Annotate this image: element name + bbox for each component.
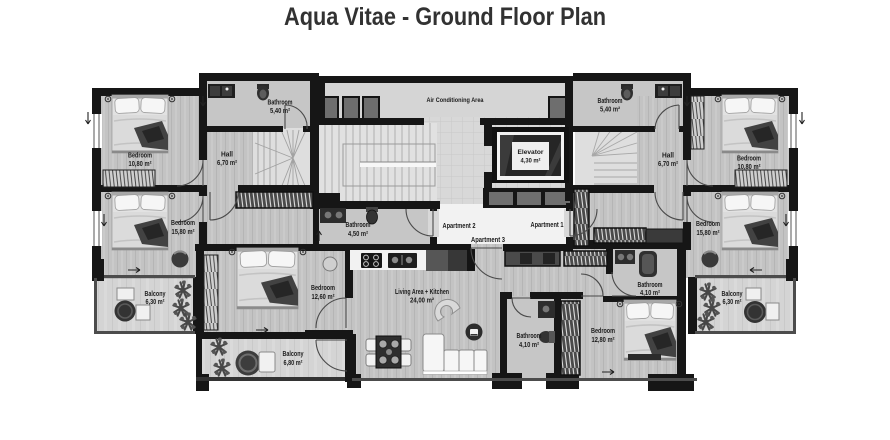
svg-text:Aqua Vitae - Ground Floor Plan: Aqua Vitae - Ground Floor Plan	[284, 3, 606, 31]
svg-text:Bathroom: Bathroom	[268, 100, 293, 107]
svg-text:Balcony: Balcony	[722, 291, 743, 298]
svg-text:Bedroom: Bedroom	[591, 328, 615, 335]
svg-text:6,80 m²: 6,80 m²	[284, 360, 304, 367]
svg-text:Bedroom: Bedroom	[311, 285, 335, 292]
svg-text:Bedroom: Bedroom	[737, 156, 761, 163]
svg-text:5,40 m²: 5,40 m²	[270, 108, 291, 115]
svg-text:Bedroom: Bedroom	[696, 221, 720, 228]
svg-text:24,00 m²: 24,00 m²	[410, 298, 435, 305]
svg-text:Balcony: Balcony	[283, 351, 304, 358]
svg-text:Apartment 1: Apartment 1	[531, 222, 564, 229]
svg-text:6,30 m²: 6,30 m²	[723, 299, 743, 306]
svg-text:Bathroom: Bathroom	[517, 333, 542, 340]
svg-text:4,10 m²: 4,10 m²	[519, 342, 540, 349]
svg-text:5,40 m²: 5,40 m²	[600, 107, 621, 114]
svg-text:Bedroom: Bedroom	[128, 153, 152, 160]
svg-text:12,60 m²: 12,60 m²	[312, 294, 336, 301]
svg-text:Air Conditioning Area: Air Conditioning Area	[427, 97, 484, 104]
svg-text:10,80 m²: 10,80 m²	[129, 161, 153, 168]
svg-text:Balcony: Balcony	[145, 291, 166, 298]
svg-text:Bathroom: Bathroom	[638, 282, 663, 289]
svg-text:12,80 m²: 12,80 m²	[592, 337, 616, 344]
svg-text:4,50 m²: 4,50 m²	[348, 231, 369, 238]
svg-text:Bathroom: Bathroom	[346, 222, 371, 229]
svg-text:Hall: Hall	[221, 152, 233, 159]
svg-text:15,80 m²: 15,80 m²	[172, 229, 196, 236]
svg-text:Living Area + Kitchen: Living Area + Kitchen	[395, 289, 449, 296]
svg-text:Elevator: Elevator	[518, 149, 545, 156]
svg-text:Bedroom: Bedroom	[171, 220, 195, 227]
svg-text:15,80 m²: 15,80 m²	[697, 230, 721, 237]
svg-text:4,30 m²: 4,30 m²	[521, 158, 541, 165]
svg-text:6,70 m²: 6,70 m²	[217, 160, 238, 167]
svg-text:Apartment 3: Apartment 3	[471, 237, 505, 244]
svg-text:Bathroom: Bathroom	[598, 98, 623, 105]
svg-text:4,10 m²: 4,10 m²	[640, 290, 661, 297]
svg-text:6,30 m²: 6,30 m²	[146, 299, 166, 306]
svg-text:10,80 m²: 10,80 m²	[738, 164, 762, 171]
svg-text:Hall: Hall	[662, 153, 674, 160]
svg-text:6,70 m²: 6,70 m²	[658, 161, 679, 168]
svg-text:Apartment 2: Apartment 2	[443, 223, 476, 230]
